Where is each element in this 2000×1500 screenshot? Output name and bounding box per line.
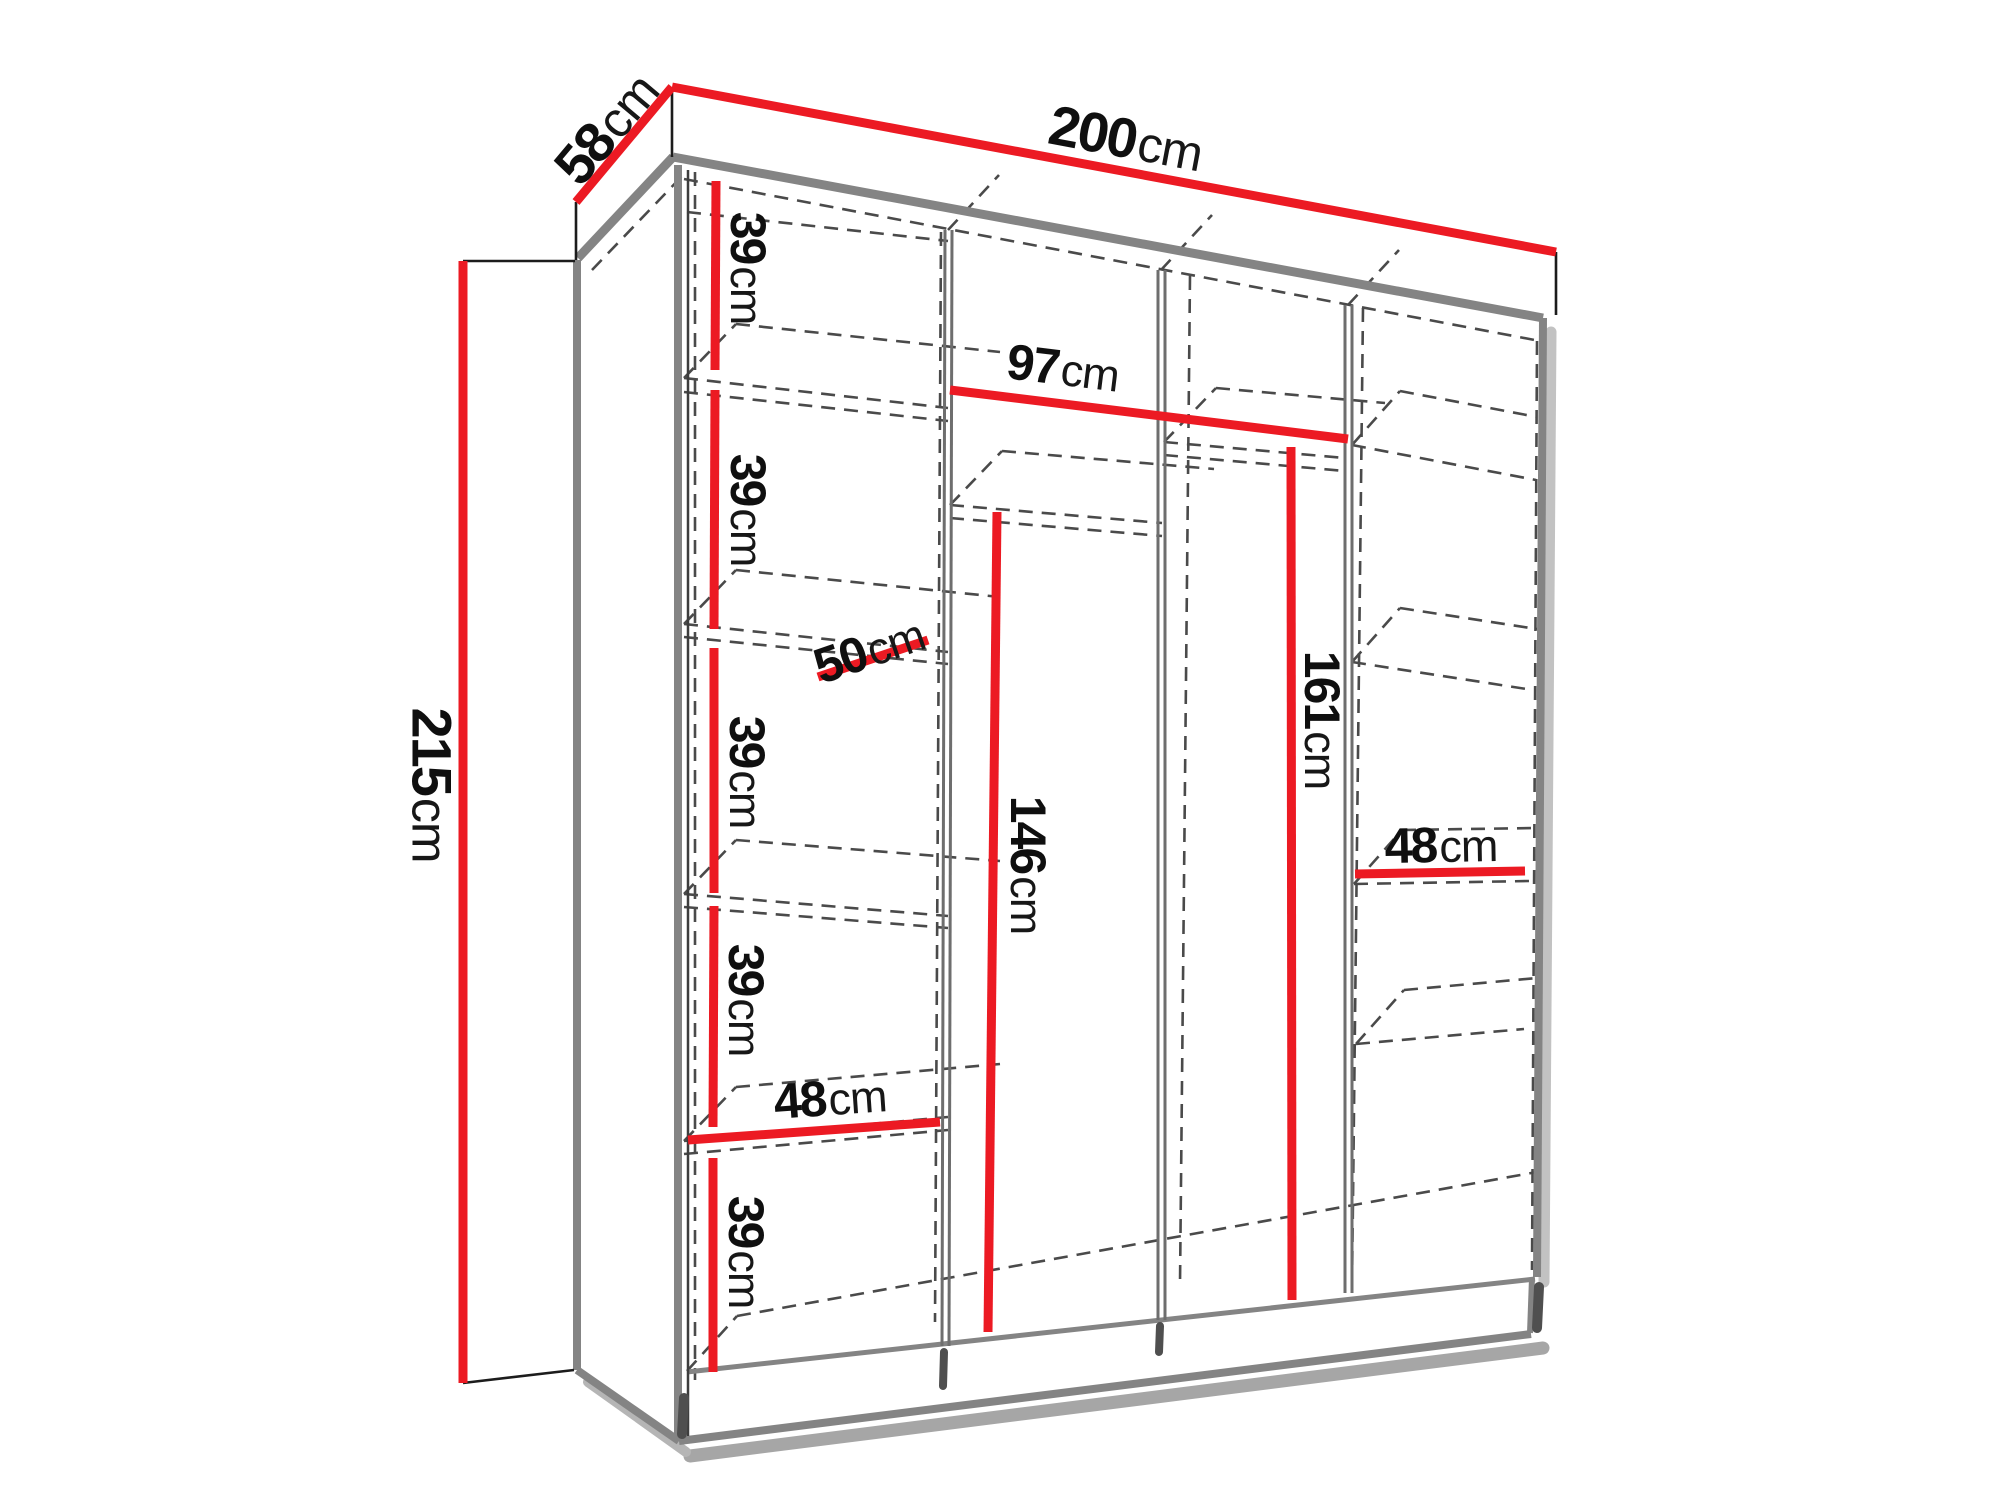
dim-value: 39: [717, 1196, 775, 1248]
partition-a: [942, 230, 945, 1346]
dim-value: 215: [400, 707, 465, 794]
dim-label-hang-161: 161cm: [1293, 651, 1351, 789]
dim-value: 146: [999, 796, 1057, 873]
dim-unit: cm: [718, 998, 770, 1056]
dim-value: 39: [719, 212, 777, 264]
dim-unit: cm: [1000, 876, 1052, 934]
dim-line-gap-39-2: [714, 390, 715, 629]
dim-line-opening-97: [950, 390, 1348, 439]
plinth-bottom-edge: [679, 1334, 1531, 1441]
dim-value: 48: [772, 1069, 828, 1130]
dim-label-gap-39-4: 39cm: [717, 944, 775, 1057]
dim-value: 161: [1293, 651, 1351, 728]
dim-label-gap-39-1: 39cm: [719, 212, 777, 325]
dim-value: 39: [717, 944, 775, 996]
dim-label-gap-39-5: 39cm: [717, 1196, 775, 1309]
dim-line-hang-161: [1291, 447, 1292, 1300]
floor-front-edge: [687, 1279, 1535, 1372]
dim-line-gap-39-1: [715, 181, 716, 370]
dim-unit: cm: [1133, 114, 1207, 183]
dim-unit: cm: [720, 266, 772, 324]
dimension-lines: [463, 87, 1556, 1383]
dim-unit: cm: [827, 1070, 888, 1126]
dim-value: 39: [719, 454, 777, 506]
dim-label-gap-39-2: 39cm: [719, 454, 777, 567]
dim-line-hang-146: [988, 512, 997, 1332]
dim-line-gap-39-4: [713, 906, 714, 1127]
dim-label-hang-146: 146cm: [999, 796, 1057, 934]
dim-label-gap-39-3: 39cm: [718, 716, 776, 829]
dim-unit: cm: [1294, 731, 1346, 789]
dim-unit: cm: [1439, 820, 1498, 873]
wardrobe-line-art: [0, 0, 2000, 1500]
dim-unit: cm: [720, 508, 772, 566]
dim-unit: cm: [1058, 344, 1122, 403]
dim-label-shelf-48-right: 48cm: [1384, 815, 1498, 875]
dim-label-height-215: 215cm: [400, 707, 465, 862]
extension-lines: [463, 87, 1556, 1383]
dim-unit: cm: [401, 798, 459, 863]
dim-value: 48: [1384, 816, 1437, 875]
plinth-right-edge: [1530, 1278, 1532, 1333]
plinth-left-edge: [577, 1370, 679, 1441]
dim-value: 39: [718, 716, 776, 768]
wardrobe-dimension-diagram: 200cm58cm215cm97cm161cm146cm48cm48cm50cm…: [0, 0, 2000, 1500]
dim-unit: cm: [718, 1250, 770, 1308]
dim-unit: cm: [719, 770, 771, 828]
dim-label-shelf-48-left: 48cm: [772, 1065, 888, 1131]
dim-value: 97: [1004, 332, 1062, 396]
top-front-edge: [673, 157, 1543, 318]
